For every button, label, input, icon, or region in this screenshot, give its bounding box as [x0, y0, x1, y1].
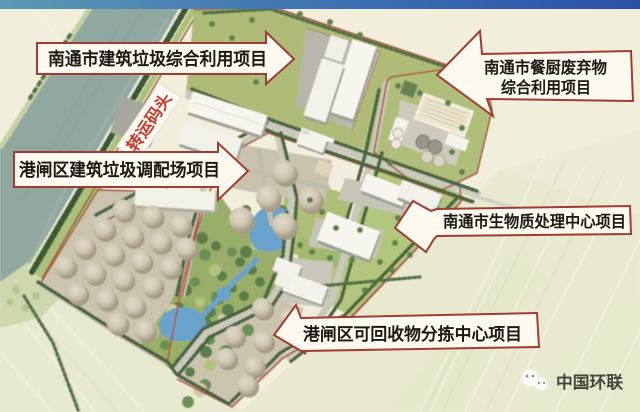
svg-text:南通市餐厨废弃物: 南通市餐厨废弃物: [484, 58, 607, 77]
svg-text:中国环联: 中国环联: [556, 372, 624, 392]
svg-text:南通市生物质处理中心项目: 南通市生物质处理中心项目: [443, 212, 626, 231]
svg-text:南通市建筑垃圾综合利用项目: 南通市建筑垃圾综合利用项目: [48, 49, 267, 69]
svg-text:港闸区建筑垃圾调配场项目: 港闸区建筑垃圾调配场项目: [19, 160, 220, 180]
svg-text:综合利用项目: 综合利用项目: [501, 78, 591, 97]
svg-text:港闸区可回收物分拣中心项目: 港闸区可回收物分拣中心项目: [303, 324, 522, 344]
